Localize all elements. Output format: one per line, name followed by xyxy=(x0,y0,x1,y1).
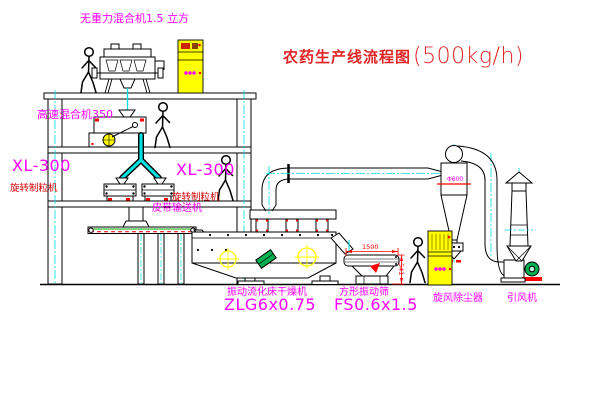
exhaust-duct xyxy=(262,164,441,211)
control-cabinet-top xyxy=(178,40,203,93)
person-floor2 xyxy=(155,103,170,148)
induced-draft-fan-machine xyxy=(501,260,542,282)
title-capacity: (500kg/h) xyxy=(413,44,524,69)
belt-conveyor-machine xyxy=(88,207,196,284)
high-speed-mixer-machine xyxy=(89,110,146,147)
rotary-granulator-left xyxy=(104,178,136,201)
rotary-granulator-right xyxy=(142,178,174,201)
fluid-bed-dryer-machine xyxy=(192,210,353,285)
person-floor3 xyxy=(218,156,233,201)
drawing-title: 农药生产线流程图 (500kg/h) xyxy=(283,44,524,69)
vibrating-sieve-machine xyxy=(344,240,399,284)
exhaust-stack xyxy=(505,172,533,261)
gravity-mixer-machine xyxy=(92,44,164,111)
cad-process-flow-screenshot: 农药生产线流程图 (500kg/h) 无重力混合机1.5 立方 高速混合机350… xyxy=(0,0,600,403)
control-cabinet-right xyxy=(428,231,452,285)
title-text: 农药生产线流程图 xyxy=(283,46,411,67)
person-ground xyxy=(410,238,425,283)
